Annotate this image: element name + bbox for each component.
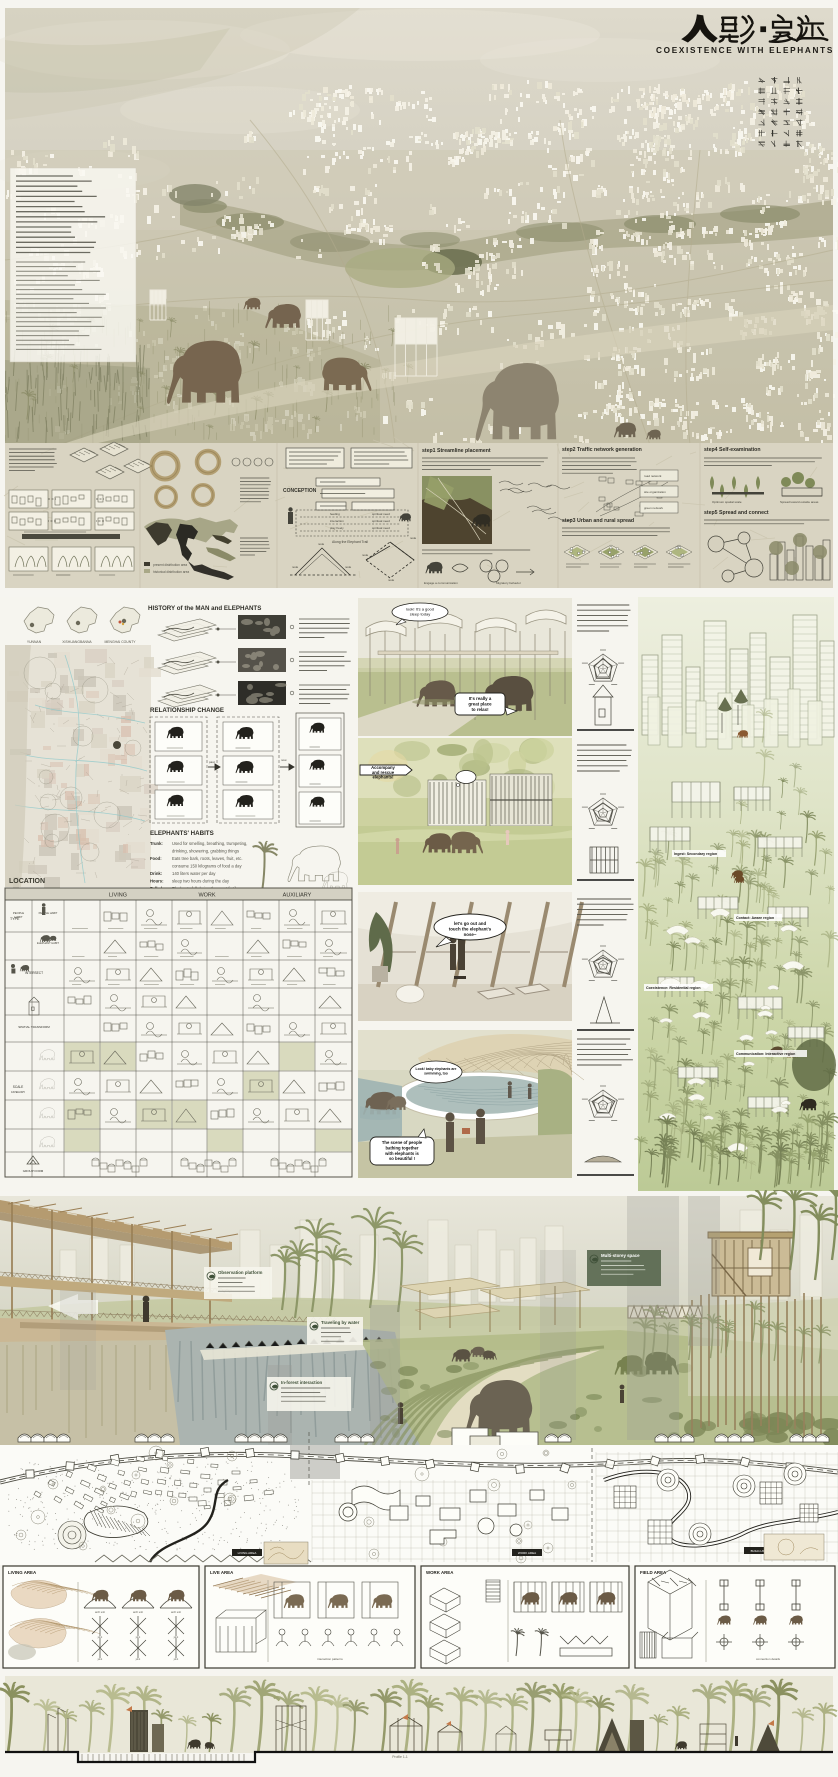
svg-text:past: past — [209, 760, 215, 764]
svg-text:Profile 1-1: Profile 1-1 — [392, 1755, 408, 1759]
svg-text:sleep today: sleep today — [410, 612, 430, 617]
svg-text:CONCEPTION: CONCEPTION — [283, 488, 317, 494]
svg-text:In-forest interaction: In-forest interaction — [281, 1380, 323, 1385]
svg-text:node: node — [318, 542, 325, 546]
svg-text:joint: joint — [135, 1658, 141, 1661]
svg-text:node: node — [362, 553, 369, 557]
svg-text:connection details: connection details — [756, 1657, 781, 1661]
svg-text:green network: green network — [644, 506, 664, 510]
svg-text:consume 150 kilograms of food: consume 150 kilograms of food a day — [172, 864, 243, 869]
svg-text:PEOPLE HABIT: PEOPLE HABIT — [39, 911, 58, 915]
svg-text:Optimum spatial scale: Optimum spatial scale — [712, 500, 742, 504]
svg-text:road network: road network — [644, 474, 662, 478]
svg-text:Drink:: Drink: — [150, 871, 162, 876]
svg-text:FIELD AREA: FIELD AREA — [640, 1570, 667, 1575]
svg-text:LIVE AREA: LIVE AREA — [210, 1570, 234, 1575]
svg-text:step3 Urban and rural spread: step3 Urban and rural spread — [562, 518, 634, 524]
svg-text:Eats tree bark, roots, leaves,: Eats tree bark, roots, leaves, fruit, et… — [172, 856, 243, 861]
svg-text:sleep two hours during the day: sleep two hours during the day — [172, 879, 230, 884]
svg-text:XISHUANGBANNA: XISHUANGBANNA — [62, 640, 92, 644]
svg-text:arch unit: arch unit — [95, 1610, 105, 1614]
svg-text:COEXISTENCE WITH ELEPHANTS: COEXISTENCE WITH ELEPHANTS — [656, 46, 834, 55]
svg-text:present distribution area: present distribution area — [153, 563, 187, 567]
svg-text:nose~: nose~ — [464, 932, 477, 937]
svg-text:Observation platform: Observation platform — [218, 1270, 262, 1275]
svg-text:LOCATION: LOCATION — [9, 878, 45, 885]
svg-text:interaction patterns: interaction patterns — [317, 1657, 343, 1661]
svg-text:feeding: feeding — [330, 512, 340, 516]
svg-text:Coexistence: Residential regio: Coexistence: Residential region — [646, 986, 701, 990]
svg-text:great place: great place — [468, 702, 492, 707]
svg-text:elephants!: elephants! — [373, 774, 394, 779]
svg-text:let's go out and: let's go out and — [454, 921, 487, 926]
svg-text:WORK: WORK — [198, 893, 215, 899]
svg-text:site organization: site organization — [644, 490, 666, 494]
svg-text:spiritual need: spiritual need — [372, 519, 390, 523]
svg-text:SPATIAL TRANSFORM: SPATIAL TRANSFORM — [18, 1025, 50, 1029]
svg-text:node: node — [410, 536, 417, 540]
svg-text:HABIT: HABIT — [14, 915, 23, 919]
svg-text:Hours:: Hours: — [150, 879, 164, 884]
svg-text:Communication: Interactive reg: Communication: Interactive region — [736, 1052, 795, 1056]
svg-text:arch unit: arch unit — [133, 1610, 143, 1614]
svg-text:now: now — [281, 758, 287, 762]
svg-text:WORK AREA: WORK AREA — [518, 1551, 536, 1555]
svg-text:Spread toward outside areas: Spread toward outside areas — [780, 500, 819, 504]
svg-text:swimming, too: swimming, too — [424, 1072, 448, 1076]
svg-text:with elephants is: with elephants is — [384, 1151, 419, 1156]
svg-text:MENGHAI COUNTY: MENGHAI COUNTY — [104, 640, 136, 644]
svg-text:Traveling by water: Traveling by water — [321, 1320, 360, 1325]
svg-text:The scene of people: The scene of people — [382, 1140, 423, 1145]
svg-text:INTERSECT: INTERSECT — [25, 971, 43, 975]
svg-text:It's really a: It's really a — [469, 696, 492, 701]
svg-text:Used for smelling, breathing,: Used for smelling, breathing, trumpeting… — [172, 841, 247, 846]
svg-text:LIVING AREA: LIVING AREA — [238, 1551, 257, 1555]
svg-text:joint: joint — [173, 1658, 179, 1661]
svg-text:Multi-storey space: Multi-storey space — [601, 1253, 640, 1258]
svg-text:drinking, showering, grabbing: drinking, showering, grabbing things — [172, 849, 239, 854]
svg-text:AUXILIARY: AUXILIARY — [283, 893, 312, 899]
svg-text:Look! baby elephants are: Look! baby elephants are — [416, 1067, 457, 1071]
svg-text:LIVING: LIVING — [109, 893, 127, 899]
svg-text:step1 Streamline placement: step1 Streamline placement — [422, 448, 491, 454]
svg-text:so beautiful !: so beautiful ! — [389, 1156, 415, 1161]
svg-text:node: node — [388, 578, 395, 582]
svg-text:historical distribution area: historical distribution area — [153, 570, 189, 574]
svg-text:Contact: Aware region: Contact: Aware region — [736, 916, 774, 920]
svg-text:step5 Spread and connect: step5 Spread and connect — [704, 510, 769, 516]
svg-text:spiritual need: spiritual need — [372, 512, 390, 516]
svg-text:GROUP FORM: GROUP FORM — [23, 1169, 44, 1173]
svg-text:Ingest: Secondary region: Ingest: Secondary region — [674, 852, 717, 856]
svg-text:ELEPHANTS' HABITS: ELEPHANTS' HABITS — [150, 830, 214, 837]
svg-text:HISTORY of the MAN and ELEPHAN: HISTORY of the MAN and ELEPHANTS — [148, 605, 261, 612]
svg-text:Migratory behavior: Migratory behavior — [496, 581, 521, 585]
svg-text:YUNNAN: YUNNAN — [27, 640, 42, 644]
svg-text:140 liters water per day: 140 liters water per day — [172, 871, 216, 876]
svg-text:SCALE: SCALE — [13, 1085, 23, 1089]
svg-text:node: node — [292, 565, 299, 569]
svg-text:Engage a communication: Engage a communication — [424, 581, 458, 585]
svg-text:node: node — [345, 565, 352, 569]
svg-text:interaction: interaction — [330, 519, 344, 523]
svg-text:CATEGORY: CATEGORY — [11, 1090, 26, 1094]
svg-text:bathing together: bathing together — [385, 1145, 418, 1150]
svg-text:to relax!: to relax! — [471, 707, 489, 712]
svg-text:WORK AREA: WORK AREA — [426, 1570, 454, 1575]
svg-text:RELATIONSHIP CHANGE: RELATIONSHIP CHANGE — [150, 707, 224, 714]
svg-text:joint: joint — [97, 1658, 103, 1661]
svg-text:step2 Traffic network genera: step2 Traffic network generation — [562, 447, 642, 453]
svg-text:Along the Elephant Trail: Along the Elephant Trail — [332, 540, 368, 544]
svg-text:spiritual need: spiritual need — [372, 526, 390, 530]
svg-text:touch the elephant's: touch the elephant's — [449, 927, 492, 932]
svg-text:play freely: play freely — [330, 526, 344, 530]
svg-text:LIVING AREA: LIVING AREA — [8, 1570, 37, 1575]
svg-text:step4 Self-examination: step4 Self-examination — [704, 447, 761, 453]
svg-text:Trunk:: Trunk: — [150, 841, 163, 846]
svg-text:arch unit: arch unit — [171, 1610, 181, 1614]
svg-text:Food:: Food: — [150, 856, 162, 861]
